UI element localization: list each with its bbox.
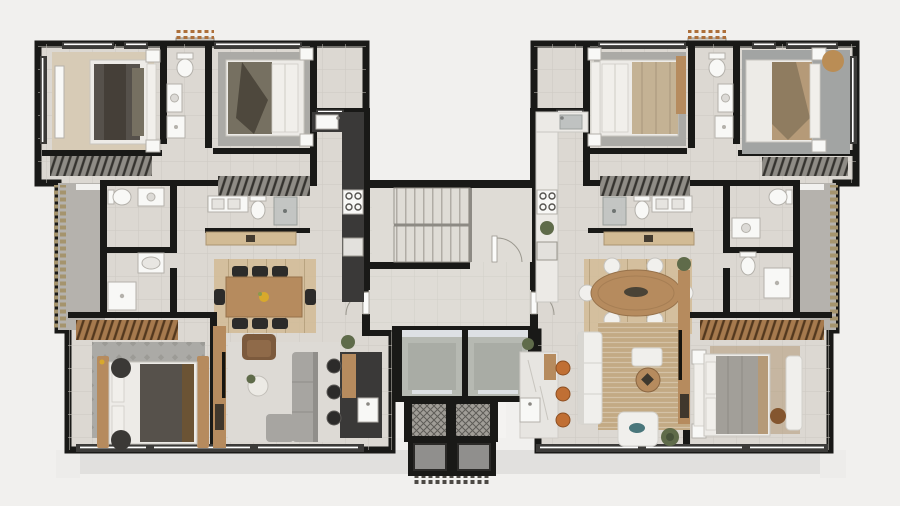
ottoman: [111, 358, 131, 378]
double-bed: [226, 48, 313, 146]
double-bed: [588, 48, 678, 146]
toilet: [740, 252, 756, 275]
wardrobe: [50, 156, 152, 176]
toilet: [769, 189, 792, 205]
elevator-block: [392, 326, 538, 402]
corner-step-left: [56, 450, 80, 478]
white-sofa: [578, 332, 602, 424]
bar-stool: [327, 359, 341, 373]
toilet: [709, 53, 725, 77]
terrace-left-sill: [76, 184, 102, 190]
bench-rail: [197, 356, 209, 448]
ac-ledge-right-grille: [688, 30, 726, 39]
round-pouf-brown: [770, 408, 786, 424]
elevator-1: [402, 330, 462, 396]
floor-plan-canvas: [0, 0, 900, 506]
island-sink: [358, 398, 378, 422]
ac-ledge-left-grille: [176, 30, 214, 39]
double-bed: [90, 50, 160, 152]
tall-counter: [536, 132, 558, 302]
service-shafts: [396, 398, 506, 442]
duct-block: [408, 438, 496, 484]
wardrobe: [600, 176, 690, 196]
wardrobe: [218, 176, 310, 196]
plant: [247, 375, 256, 384]
tall-counter: [342, 132, 364, 302]
kitchen-sink: [316, 115, 338, 129]
shaft-sill-left: [396, 402, 404, 438]
bar-stool: [327, 411, 341, 425]
double-bed: [746, 48, 826, 152]
plant: [540, 221, 554, 235]
double-bed: [692, 350, 770, 438]
toilet: [250, 196, 266, 219]
gas-cooktop: [343, 190, 363, 214]
toilet: [108, 189, 131, 205]
stool-orange: [556, 387, 570, 401]
console-decor: [644, 235, 653, 242]
side-dresser: [676, 56, 686, 114]
toilet: [634, 196, 650, 219]
terrace-hedge-left: [54, 185, 66, 328]
staircase: [372, 188, 532, 262]
wall-dresser: [55, 66, 64, 138]
stool-orange: [556, 361, 570, 375]
nightstand: [300, 48, 313, 60]
wardrobe: [762, 157, 848, 176]
left-bedroom-top: [50, 50, 160, 176]
ottoman: [111, 430, 131, 450]
terrace-right-sill: [800, 184, 824, 190]
toilet: [177, 53, 193, 77]
plant: [522, 338, 534, 350]
tv-panel: [213, 326, 226, 448]
console-decor: [246, 235, 255, 242]
nightstand: [588, 48, 601, 60]
round-pouf: [822, 50, 844, 72]
stool-orange: [556, 413, 570, 427]
entry-hedge: [414, 476, 490, 484]
terrace-hedge-right: [828, 185, 840, 328]
bar-stool: [327, 385, 341, 399]
corner-step-right: [820, 450, 846, 478]
table-decor: [624, 287, 648, 297]
appliance: [537, 242, 557, 260]
elevator-2: [468, 330, 528, 396]
white-bench: [786, 356, 802, 430]
headboard: [694, 364, 704, 426]
plant: [341, 335, 355, 349]
wardrobe-wood: [700, 320, 824, 340]
white-ottoman: [632, 348, 662, 366]
service-shaft-1: [412, 404, 446, 436]
service-shaft-2: [456, 404, 490, 436]
terrace-left: [54, 183, 105, 330]
island-sink: [520, 398, 540, 422]
terrace-right: [800, 183, 840, 330]
bench-rail: [97, 356, 109, 448]
shaft-sill-right: [498, 402, 506, 438]
nightstand: [146, 140, 160, 152]
double-bed: [97, 356, 209, 450]
duct-2: [458, 444, 490, 470]
coffee-table-wood: [636, 368, 660, 392]
teal-pillow: [629, 423, 645, 433]
nightstand: [588, 134, 601, 146]
plant: [677, 257, 691, 271]
floor-plan-svg: [0, 0, 900, 506]
appliance: [343, 238, 363, 256]
wardrobe-wood: [76, 320, 178, 340]
armchair-brown: [242, 334, 276, 360]
duct-1: [414, 444, 446, 470]
nightstand: [146, 50, 160, 62]
tv-panel: [677, 257, 691, 424]
nightstand: [300, 134, 313, 146]
nightstand: [812, 140, 826, 152]
white-armchair: [618, 412, 658, 446]
gas-cooktop: [537, 190, 557, 214]
